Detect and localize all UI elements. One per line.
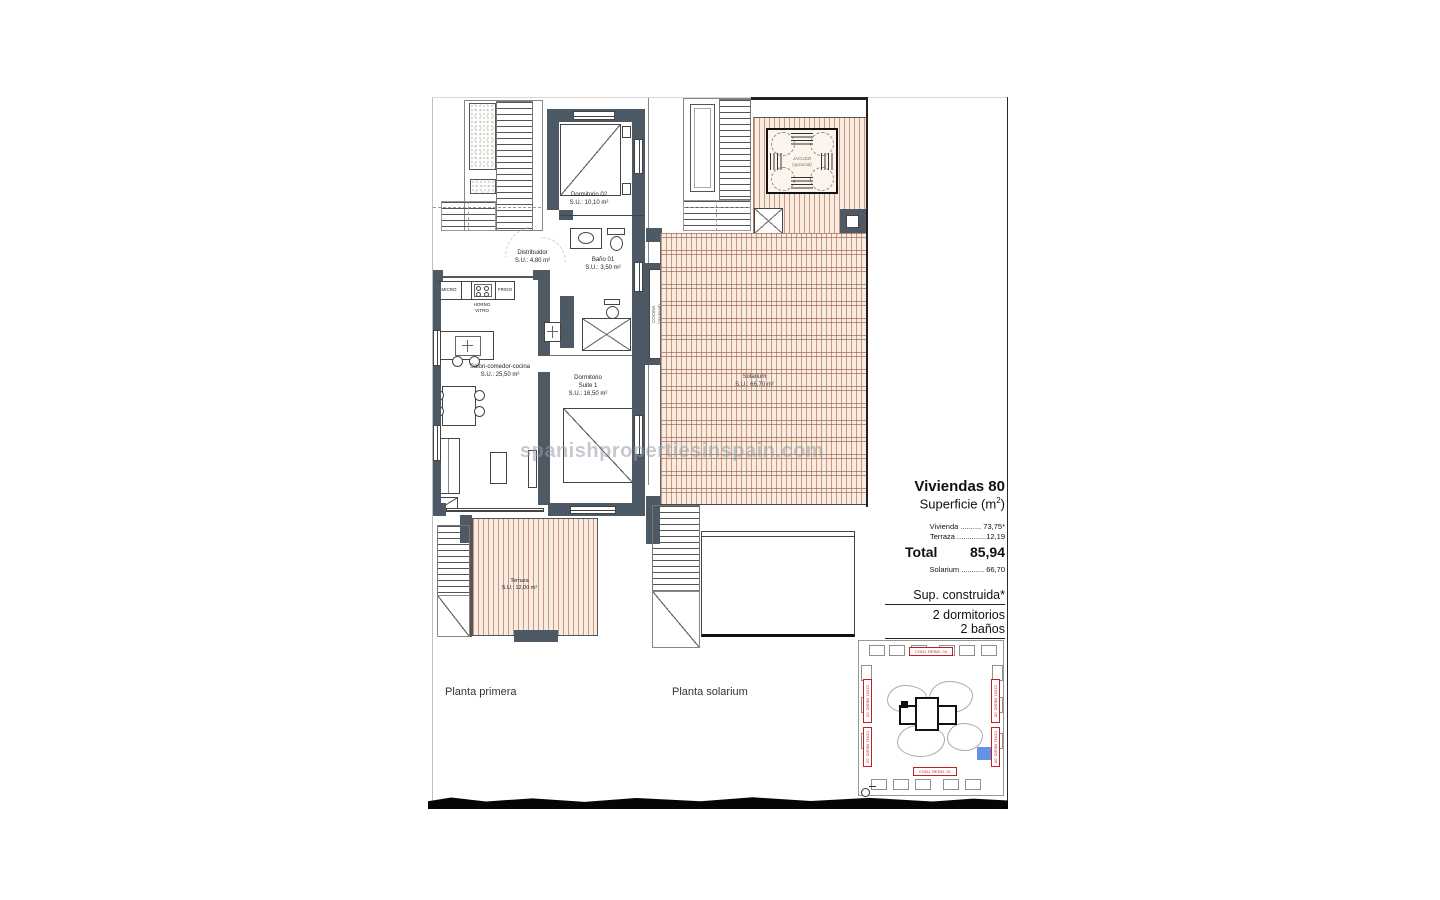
hob-ring: [484, 292, 489, 297]
chair: [474, 390, 485, 401]
stair-treads-lower: [683, 200, 751, 231]
stair-treads: [496, 101, 533, 231]
window: [433, 425, 441, 461]
map-building: [871, 779, 887, 790]
area-row-solarium: Solarium ........... 66,70: [893, 565, 1005, 574]
map-building: [959, 645, 975, 656]
toilet-bowl: [610, 236, 623, 251]
jacuzzi-jets: [821, 153, 833, 170]
wall: [514, 630, 558, 642]
plan-title-solarium: Planta solarium: [672, 686, 748, 698]
counter-divider: [471, 282, 472, 299]
shower: [582, 318, 631, 351]
terrace-deck: [472, 518, 598, 636]
area-row-terraza: Terraza ..............12,19: [893, 532, 1005, 541]
label-text: (opcional): [784, 162, 820, 168]
hob-ring: [476, 286, 481, 291]
room-label-bano01: Baño 01 S.U.: 3,50 m²: [580, 257, 626, 273]
kitchen-label-horno-vitro: HORNO VITRO: [466, 302, 498, 314]
stair-void-hatch: [469, 103, 496, 170]
room-name: Dormitorio 02: [556, 192, 622, 200]
dining-table: [442, 386, 476, 426]
room-name: Suite 1: [560, 383, 616, 391]
stair-void-hatch-small: [470, 179, 496, 194]
map-building: [915, 779, 931, 790]
map-label-resid-left-bottom: CONJ. RESID. 02: [863, 727, 872, 767]
sink-cross: [547, 331, 558, 332]
window: [573, 111, 615, 120]
sink-cross: [462, 345, 473, 346]
label-text: FRIGO: [495, 287, 515, 293]
map-building: [889, 645, 905, 656]
room-area: S.U.: 16,50 m²: [560, 391, 616, 399]
nightstand: [622, 126, 631, 138]
section-cut-line: [683, 207, 751, 208]
room-name: Solarium: [722, 374, 787, 382]
room-label-solarium: Solarium S.U.: 66,70 m²: [722, 374, 787, 390]
room-label-terraza: Terraza S.U.: 12,00 m²: [492, 578, 547, 592]
window: [433, 330, 441, 366]
hob-ring: [476, 292, 481, 297]
room-label-salon: Salon-comedor-cocina S.U.: 25,50 m²: [462, 364, 538, 380]
stair-cut: [437, 595, 470, 637]
plan-title-primera: Planta primera: [445, 686, 517, 698]
map-label-resid-left-top: CONJ. RESID. 03: [863, 679, 872, 723]
chimney-flue: [846, 215, 859, 228]
window: [634, 262, 643, 292]
map-building: [965, 779, 981, 790]
map-building: [893, 779, 909, 790]
sofa-cushion-line: [448, 439, 449, 493]
toilet-tank: [604, 299, 620, 305]
room-area: S.U.: 66,70 m²: [722, 382, 787, 390]
area-row-total: Total 85,94: [893, 544, 1005, 560]
window: [634, 139, 643, 174]
map-building: [869, 645, 885, 656]
map-label-resid-top: CONJ. RESID. 04: [909, 647, 953, 656]
map-unit-marker: [901, 701, 908, 708]
room-area: S.U.: 10,10 m²: [556, 200, 622, 208]
sliding-door: [446, 508, 544, 512]
jacuzzi-jets: [770, 153, 782, 170]
pergola-beams: [660, 233, 866, 505]
wall: [538, 372, 550, 505]
room-area: S.U.: 3,50 m²: [580, 265, 626, 273]
jacuzzi: JACUZZI (opcional): [766, 128, 838, 194]
sup-construida-label: Sup. construida*: [885, 588, 1005, 605]
floorplan-page: Dormitorio 02 S.U.: 10,10 m² Baño 01 S.U…: [0, 0, 1440, 900]
sink-basin: [578, 232, 594, 244]
wall: [538, 278, 550, 356]
stair-treads: [719, 99, 751, 200]
site-map: CONJ. RESID. 04 CONJ. RESID. 03 CONJ. RE…: [858, 640, 1004, 796]
room-area: S.U.: 25,50 m²: [462, 372, 538, 380]
bathrooms-label: 2 baños: [885, 622, 1005, 639]
room-label-dormitorio02: Dormitorio 02 S.U.: 10,10 m²: [556, 192, 622, 208]
sheet-right-border: [1007, 97, 1008, 807]
map-current-building: [915, 697, 939, 731]
units-title: Viviendas 80: [893, 478, 1005, 495]
stair-center-dash: [716, 200, 717, 231]
total-label: Total: [905, 544, 937, 560]
jacuzzi-jets: [791, 133, 813, 145]
toilet-bowl: [606, 306, 619, 319]
room-label-distribuidor: Distribuidor S.U.: 4,80 m²: [505, 250, 560, 266]
map-label-resid-right-bottom: CONJ. RESID. 06: [991, 727, 1000, 767]
sink-cross: [467, 340, 468, 352]
section-cut-line: [433, 207, 541, 208]
map-label-resid-bottom: CONJ. RESID. 01: [913, 767, 957, 776]
total-value: 85,94: [970, 544, 1005, 560]
superficie-text: ): [1001, 496, 1005, 511]
stair-center-dash: [468, 201, 469, 231]
area-row-vivienda: Vivienda .......... 73,75*: [893, 522, 1005, 531]
wall-line: [866, 97, 868, 507]
room-name: Distribuidor: [505, 250, 560, 258]
jacuzzi-label: JACUZZI (opcional): [784, 156, 820, 168]
jacuzzi-jets: [791, 177, 813, 189]
room-area: S.U.: 12,00 m²: [492, 585, 547, 592]
map-building: [943, 779, 959, 790]
wall: [433, 503, 446, 516]
room-name: Dormitorio: [560, 375, 616, 383]
chair: [474, 406, 485, 417]
scan-artifact-bar: [428, 796, 1008, 809]
stair-cut: [652, 591, 700, 648]
hob-ring: [484, 286, 489, 291]
room-name: Salon-comedor-cocina: [462, 364, 538, 372]
toilet-tank: [607, 228, 625, 235]
north-arrow-flag: [869, 786, 876, 787]
roof-hatch: [754, 208, 783, 234]
jacuzzi-seat: [810, 167, 834, 191]
nightstand: [622, 183, 631, 195]
label-text: VITRO: [466, 308, 498, 314]
sink-cross: [552, 326, 553, 338]
counter-divider: [461, 282, 462, 299]
bed-dormitorio02: [560, 124, 621, 196]
wall-line: [559, 215, 645, 216]
wall: [560, 296, 574, 348]
kitchen-label-frigo: FRIGO: [495, 287, 515, 293]
window: [570, 506, 616, 514]
watermark: spanishpropertiesinspain.com: [520, 440, 824, 463]
stairs-lower: [652, 505, 700, 591]
room-name: Terraza: [492, 578, 547, 585]
room-name: Baño 01: [580, 257, 626, 265]
north-arrow: [861, 788, 870, 797]
room-area: S.U.: 4,80 m²: [505, 258, 560, 266]
bedrooms-label: 2 dormitorios: [885, 608, 1005, 622]
wall-line: [550, 355, 632, 356]
map-label-resid-right-top: CONJ. RESID. 05: [991, 679, 1000, 723]
superficie-text: Superficie (m: [920, 496, 997, 511]
lower-terrace-outline: [701, 531, 855, 637]
stair-void-inner: [694, 108, 711, 188]
wall-line: [433, 276, 543, 278]
superficie-heading: Superficie (m2): [893, 496, 1005, 511]
info-panel: Viviendas 80 Superficie (m2) Vivienda ..…: [893, 478, 1005, 574]
island-sink: [455, 336, 481, 356]
wall-line: [701, 536, 855, 537]
info-panel-construida: Sup. construida* 2 dormitorios 2 baños: [885, 588, 1005, 639]
map-building: [981, 645, 997, 656]
wall-line: [751, 97, 868, 100]
room-label-suite: Dormitorio Suite 1 S.U.: 16,50 m²: [560, 375, 616, 398]
wall: [433, 282, 441, 515]
coffee-table: [490, 452, 507, 484]
